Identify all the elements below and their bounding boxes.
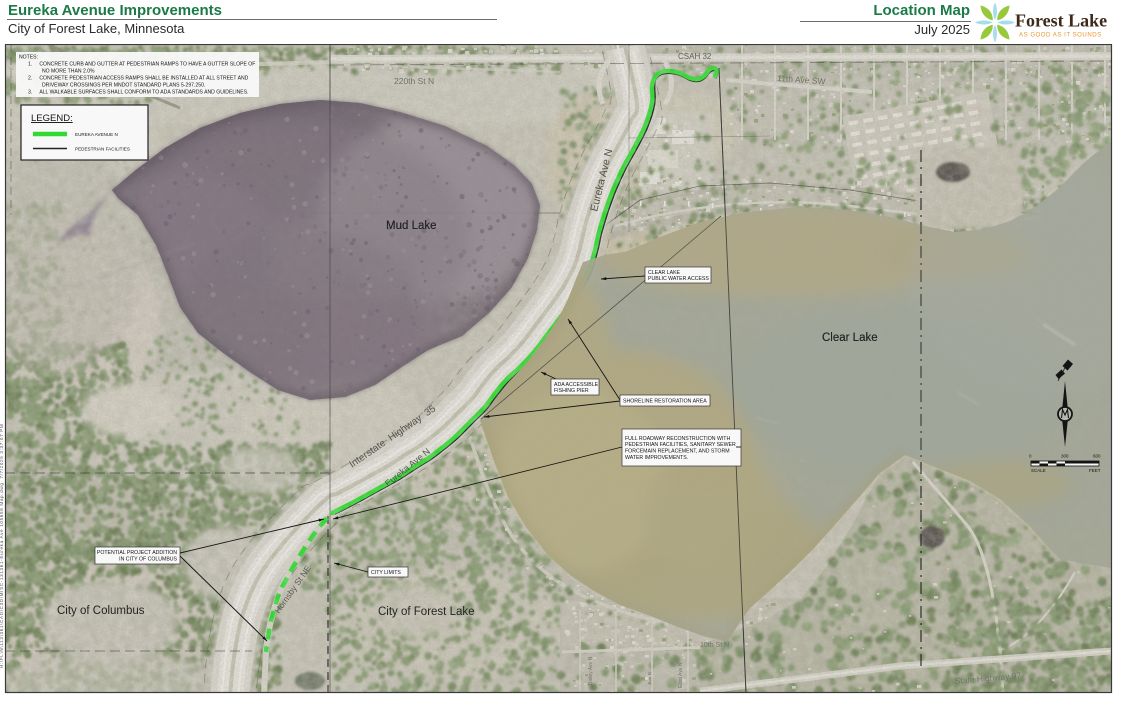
svg-text:Forest Lake: Forest Lake xyxy=(1015,11,1107,31)
svg-text:AS GOOD AS IT SOUNDS: AS GOOD AS IT SOUNDS xyxy=(1019,32,1102,39)
